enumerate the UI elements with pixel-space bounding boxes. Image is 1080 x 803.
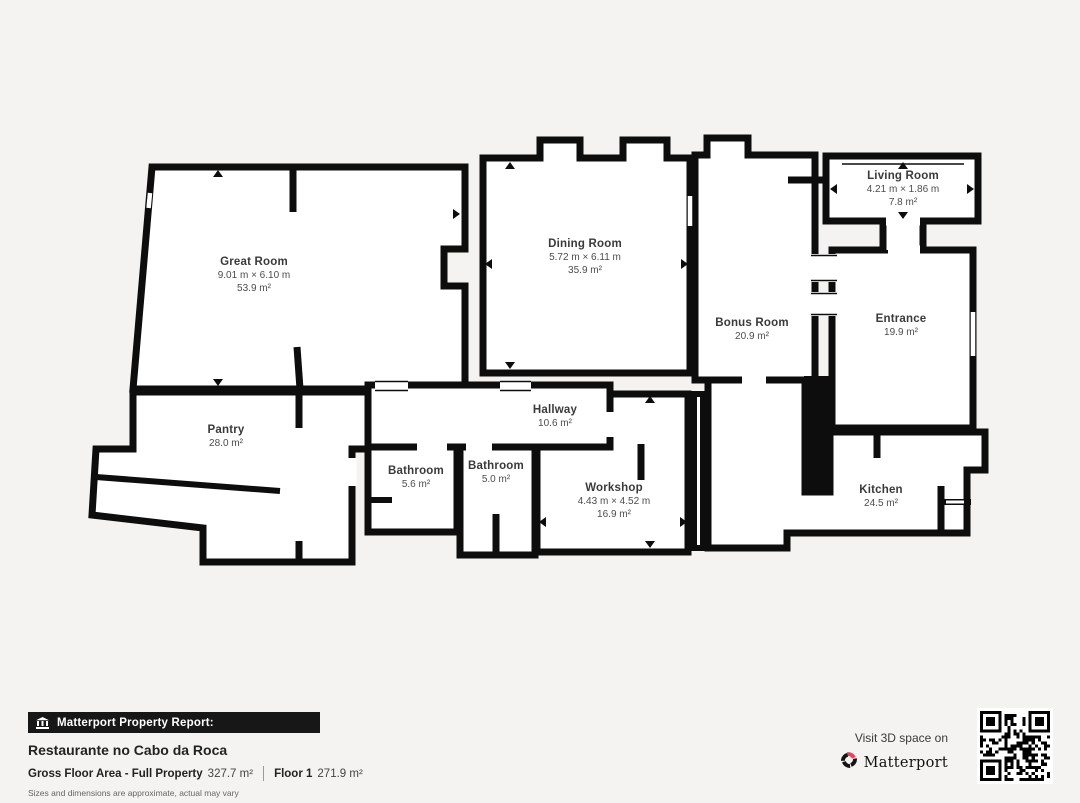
room-shape-bonus-room (695, 138, 815, 380)
floor-label: Floor 1 (274, 768, 312, 780)
area-stats: Gross Floor Area - Full Property 327.7 m… (28, 766, 363, 781)
room-shape-bathroom-1 (368, 447, 457, 532)
floor-value: 271.9 m² (317, 768, 362, 780)
room-shape-corridor (694, 394, 703, 548)
room-shape-entrance (832, 250, 973, 428)
gross-area-value: 327.7 m² (208, 768, 253, 780)
building-icon (36, 717, 49, 729)
report-banner-label: Matterport Property Report: (57, 717, 214, 729)
report-info: Matterport Property Report: Restaurante … (28, 712, 363, 798)
visit-3d-cta: Visit 3D space on Matterport (840, 731, 948, 774)
visit-3d-text: Visit 3D space on (840, 731, 948, 745)
room-shape-dining-room (483, 140, 690, 373)
stats-divider (263, 766, 264, 781)
gross-area-label: Gross Floor Area - Full Property (28, 768, 203, 780)
matterport-logo[interactable]: Matterport (840, 751, 948, 774)
property-title: Restaurante no Cabo da Roca (28, 742, 363, 758)
report-banner: Matterport Property Report: (28, 712, 320, 733)
disclaimer-text: Sizes and dimensions are approximate, ac… (28, 788, 363, 798)
matterport-pinwheel-icon (840, 751, 858, 774)
qr-code[interactable] (977, 708, 1053, 789)
floor-plan (0, 0, 1080, 803)
room-shape-hallway (368, 385, 610, 447)
matterport-wordmark: Matterport (864, 755, 948, 771)
